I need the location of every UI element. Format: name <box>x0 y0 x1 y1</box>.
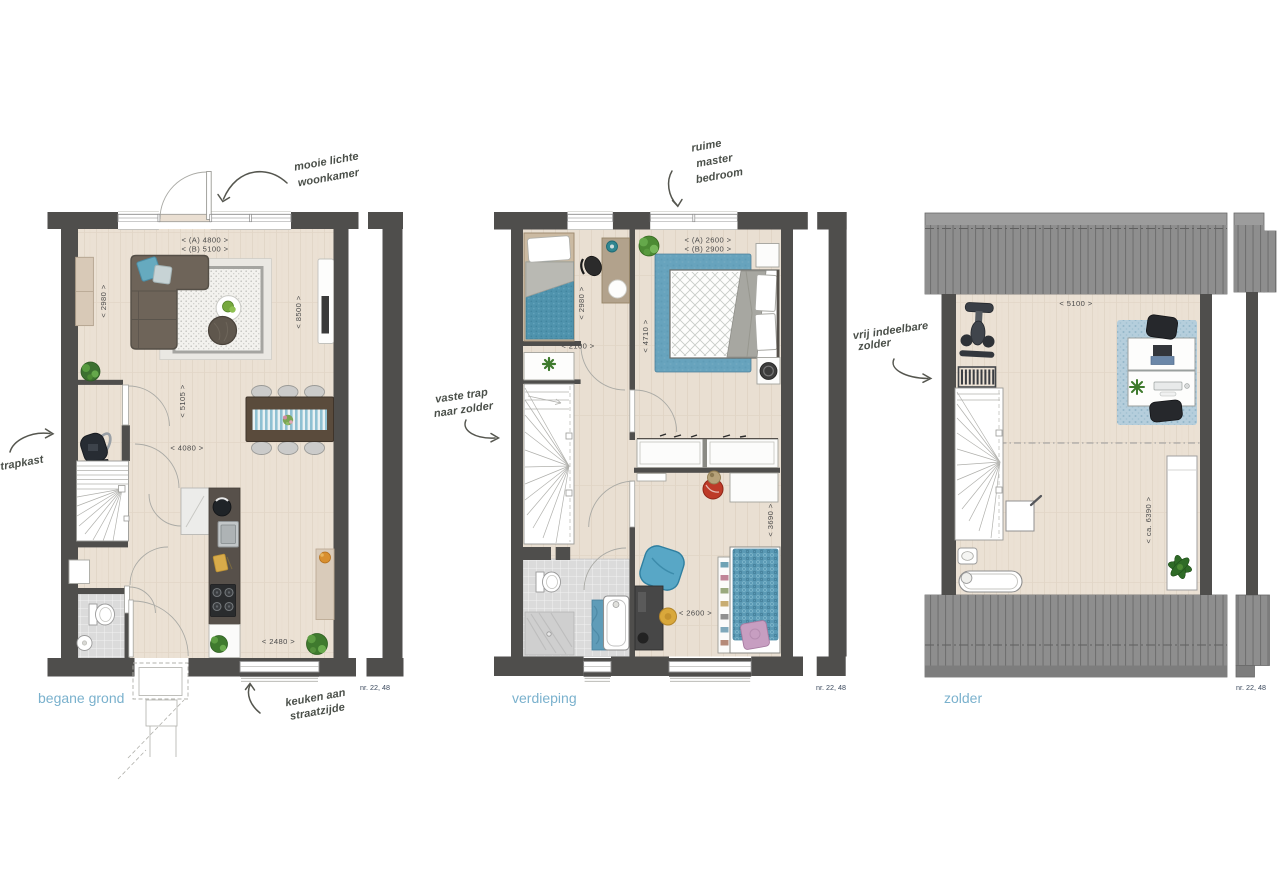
svg-text:< 2480 >: < 2480 > <box>262 637 295 646</box>
svg-text:< (A) 2600 >: < (A) 2600 > <box>684 236 731 245</box>
svg-text:zolder: zolder <box>944 690 982 706</box>
svg-text:< 4710 >: < 4710 > <box>641 319 650 352</box>
svg-text:< 2100 >: < 2100 > <box>561 342 594 351</box>
svg-text:verdieping: verdieping <box>512 690 577 706</box>
svg-text:< 4080 >: < 4080 > <box>170 444 203 453</box>
svg-text:< 2600 >: < 2600 > <box>679 609 712 618</box>
svg-text:< (B) 5100 >: < (B) 5100 > <box>181 245 228 254</box>
svg-text:nr. 22, 48: nr. 22, 48 <box>360 683 390 692</box>
svg-text:< 2980 >: < 2980 > <box>577 286 586 319</box>
svg-text:nr. 22, 48: nr. 22, 48 <box>816 683 846 692</box>
svg-text:begane grond: begane grond <box>38 690 124 706</box>
svg-text:trapkast: trapkast <box>0 453 46 473</box>
svg-text:< (A) 4800 >: < (A) 4800 > <box>181 236 228 245</box>
svg-text:< ca. 6390 >: < ca. 6390 > <box>1144 496 1153 543</box>
svg-text:vrij indeelbare: vrij indeelbare <box>852 320 929 342</box>
svg-text:ruime: ruime <box>690 137 722 154</box>
svg-text:< (B) 2900 >: < (B) 2900 > <box>684 245 731 254</box>
svg-text:nr. 22, 48: nr. 22, 48 <box>1236 683 1266 692</box>
svg-text:< 3690 >: < 3690 > <box>766 503 775 536</box>
svg-text:< 8500 >: < 8500 > <box>294 295 303 328</box>
svg-text:< 2980 >: < 2980 > <box>99 284 108 317</box>
svg-text:< 5100 >: < 5100 > <box>1059 299 1092 308</box>
svg-text:< 5105 >: < 5105 > <box>178 384 187 417</box>
